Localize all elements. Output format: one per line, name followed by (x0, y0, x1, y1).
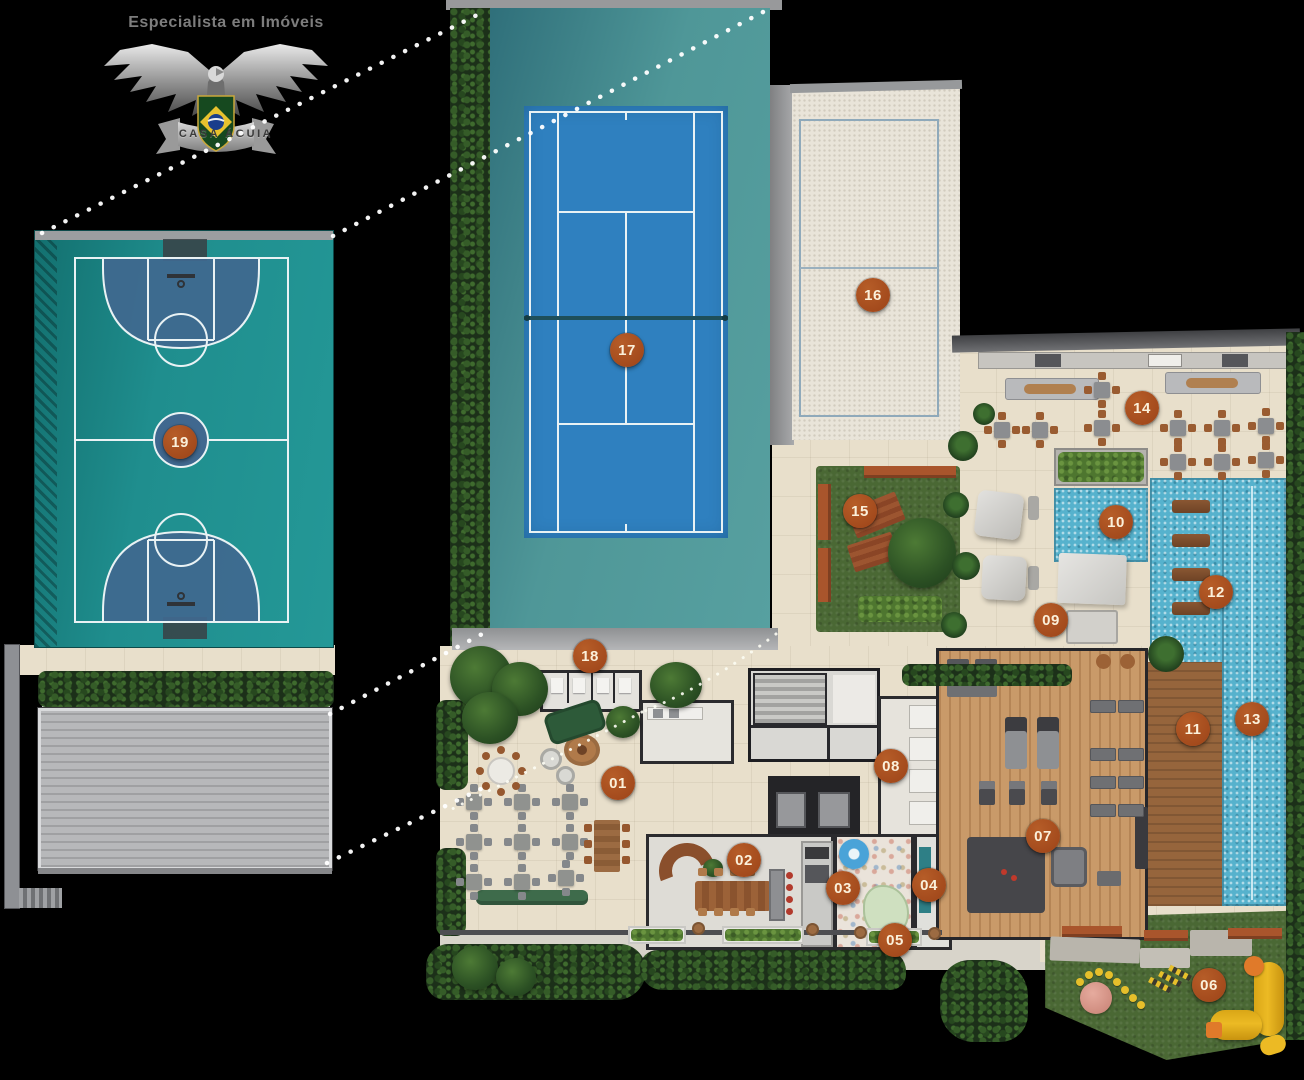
fixture (597, 678, 609, 693)
stepping-dot (1076, 978, 1084, 986)
chair (584, 856, 592, 864)
bottom-hedge (940, 960, 1028, 1042)
dining-table-set (1202, 442, 1242, 482)
gym-storage-box (1118, 700, 1144, 713)
garden-hedge (858, 596, 942, 622)
play-block (1206, 1022, 1222, 1038)
chair (504, 838, 512, 846)
stepping-dot (1121, 986, 1129, 994)
bbq-appliance (1035, 354, 1061, 367)
table (1170, 420, 1186, 436)
logo-banner-text: CASA ÁGUIA (136, 128, 316, 140)
chair (746, 908, 755, 916)
gym-storage-box (1090, 700, 1116, 713)
chair (1218, 410, 1226, 418)
chair (512, 782, 520, 790)
chair (512, 752, 520, 760)
partition (567, 673, 569, 703)
stepping-dot (1113, 978, 1121, 986)
pot-tree (692, 922, 705, 935)
stepping-dot (1137, 1001, 1145, 1009)
walkway-planter (628, 926, 686, 944)
building-left-shade (35, 240, 57, 647)
chair (566, 784, 574, 792)
chair (484, 798, 492, 806)
chair (1218, 472, 1226, 480)
playground-path (1140, 948, 1190, 968)
fixture (551, 678, 563, 693)
wc-stall (909, 737, 939, 761)
table (466, 794, 482, 810)
chair (456, 878, 464, 886)
table (514, 874, 530, 890)
chair (456, 838, 464, 846)
chair (698, 868, 707, 876)
chair (622, 840, 630, 848)
chair (1036, 412, 1044, 420)
stepping-dot (1085, 971, 1093, 979)
buffet-table (1165, 372, 1261, 394)
gym-storage-box (1118, 776, 1144, 789)
chair (562, 860, 570, 868)
chair (470, 892, 478, 900)
chair (566, 812, 574, 820)
chair (482, 752, 490, 760)
room-support-kitchen (640, 700, 734, 764)
resort-site-plan: Especialista em Imóveis (0, 0, 1304, 1080)
tennis-court-lines (524, 106, 728, 538)
treadmill (1037, 717, 1059, 769)
squat-rack (979, 781, 995, 805)
inset-left-wall (5, 645, 19, 908)
gym-bench (1097, 871, 1121, 886)
marker-14[interactable]: 14 (1125, 391, 1159, 425)
bar-stool (786, 872, 793, 879)
pool-lounger (1172, 534, 1210, 547)
chair (1188, 458, 1196, 466)
chair (1160, 458, 1168, 466)
table (562, 834, 578, 850)
dining-table-set (1246, 440, 1286, 480)
chair (698, 908, 707, 916)
patio-long-table (594, 820, 620, 872)
chair (1160, 424, 1168, 432)
wc-stall (909, 801, 939, 825)
dining-table-set (1082, 408, 1122, 448)
stepping-dot (1095, 968, 1103, 976)
patio-round-table (487, 757, 515, 785)
patio-plant (606, 706, 640, 738)
chair (1232, 458, 1240, 466)
marker-18[interactable]: 18 (573, 639, 607, 673)
elevator-car (818, 792, 850, 828)
chair (518, 812, 526, 820)
dining-long-table (695, 881, 771, 911)
garden-bench-top (864, 466, 956, 478)
chair (532, 878, 540, 886)
palm-tree (943, 492, 969, 518)
playground-bench (1062, 926, 1122, 937)
appliance (653, 709, 663, 718)
palm-tree (948, 431, 978, 461)
chair (714, 908, 723, 916)
chair (998, 412, 1006, 420)
chair (1098, 410, 1106, 418)
chair (518, 864, 526, 872)
cabana-furniture (1066, 610, 1118, 644)
gym-storage-box (1090, 748, 1116, 761)
planter-shrubs (1058, 452, 1144, 482)
chair (1262, 408, 1270, 416)
marker-13[interactable]: 13 (1235, 702, 1269, 736)
garden-tree (888, 518, 956, 588)
patio-table-set (551, 783, 589, 821)
tennis-bottom-wall (452, 628, 778, 650)
chair (576, 874, 584, 882)
landing (833, 675, 875, 723)
pot-tree (854, 926, 867, 939)
table (1094, 420, 1110, 436)
elevator-block (768, 776, 860, 836)
chair (580, 798, 588, 806)
chair (1248, 456, 1256, 464)
pool-deck (1148, 662, 1222, 906)
chair (584, 824, 592, 832)
bbq-grill (1148, 354, 1182, 367)
chair (456, 798, 464, 806)
appliance (669, 709, 679, 718)
table (514, 794, 530, 810)
gym-storage-box (1090, 804, 1116, 817)
sun-lounger (1028, 566, 1039, 590)
patio-table-set (503, 863, 541, 901)
chair (518, 852, 526, 860)
umbrella (981, 555, 1027, 601)
chair (998, 440, 1006, 448)
marker-01[interactable]: 01 (601, 766, 635, 800)
squat-rack (1041, 781, 1057, 805)
table (994, 422, 1010, 438)
marker-07[interactable]: 07 (1026, 819, 1060, 853)
gym-storage-box (1118, 748, 1144, 761)
pot-tree (806, 923, 819, 936)
garden-bench-left (818, 548, 831, 602)
chair (622, 824, 630, 832)
chair (484, 838, 492, 846)
stepping-dot (1105, 971, 1113, 979)
dumbbell (1001, 869, 1007, 875)
table (1258, 418, 1274, 434)
bbq-appliance (1222, 354, 1248, 367)
patio-table-set (503, 783, 541, 821)
treadmill (1005, 717, 1027, 769)
planter-shrubs (725, 929, 801, 941)
chair (1098, 400, 1106, 408)
chair (1188, 424, 1196, 432)
marker-04[interactable]: 04 (912, 868, 946, 902)
tennis-court-surface (524, 106, 728, 538)
chair (497, 746, 505, 754)
marker-12[interactable]: 12 (1199, 575, 1233, 609)
tennis-building (446, 0, 794, 650)
deck-pouf (1120, 654, 1135, 669)
table (466, 874, 482, 890)
chair (1276, 456, 1284, 464)
chair (584, 840, 592, 848)
core-wall (751, 725, 879, 728)
chair (532, 798, 540, 806)
chair (518, 824, 526, 832)
dining-table-set (1082, 370, 1122, 410)
playground-path (1050, 936, 1141, 963)
chair (470, 824, 478, 832)
chair (470, 852, 478, 860)
dumbbell (1011, 875, 1017, 881)
marker-02[interactable]: 02 (727, 843, 761, 877)
right-hedge-column (1286, 332, 1304, 1040)
chair (476, 767, 484, 775)
marker-09[interactable]: 09 (1034, 603, 1068, 637)
chair (1084, 386, 1092, 394)
core-wall (827, 725, 830, 759)
table (466, 834, 482, 850)
chair (1022, 426, 1030, 434)
kitchen-appliance (805, 847, 829, 859)
bottom-tree (496, 958, 536, 996)
marker-19[interactable]: 19 (163, 425, 197, 459)
chair (518, 892, 526, 900)
chair (470, 864, 478, 872)
palm-tree (1148, 636, 1184, 672)
fixture (619, 678, 631, 693)
table (558, 870, 574, 886)
chair (1012, 426, 1020, 434)
inset-stairs (19, 888, 62, 908)
chair (470, 812, 478, 820)
bar-stool (786, 908, 793, 915)
table (1170, 454, 1186, 470)
eagle-logo-icon (96, 4, 356, 179)
chair (470, 784, 478, 792)
overhang-tree (650, 662, 702, 708)
brand-logo: Especialista em Imóveis (96, 4, 356, 179)
chair (1112, 386, 1120, 394)
bar-counter (769, 869, 785, 921)
walkway-planter (722, 926, 804, 944)
beach-volleyball-area (792, 88, 960, 440)
marker-06[interactable]: 06 (1192, 968, 1226, 1002)
volleyball-court-lines (792, 88, 960, 440)
patio-tree (462, 692, 518, 744)
table (514, 834, 530, 850)
umbrella (973, 489, 1024, 540)
bar-stool (786, 896, 793, 903)
partition (591, 673, 593, 703)
chair (714, 868, 723, 876)
table (562, 794, 578, 810)
ball-pit-donut (839, 839, 869, 869)
marker-05[interactable]: 05 (878, 923, 912, 957)
pot-tree (928, 927, 941, 940)
palm-tree (952, 552, 980, 580)
planter-shrubs (631, 929, 683, 941)
inset-hedge-row (38, 671, 334, 707)
chair (1262, 442, 1270, 450)
gym-storage-box (1090, 776, 1116, 789)
table (1214, 420, 1230, 436)
chair (1262, 470, 1270, 478)
pool-lounger (1172, 500, 1210, 513)
chair (984, 426, 992, 434)
pergola-cabana (1057, 553, 1127, 605)
chair (1174, 472, 1182, 480)
dining-table-set (1020, 410, 1060, 450)
chair (484, 878, 492, 886)
patio-table-set (547, 859, 585, 897)
table (1094, 382, 1110, 398)
gym-machine (1051, 847, 1087, 887)
chair (532, 838, 540, 846)
kitchen-appliance (805, 865, 829, 883)
chair (562, 888, 570, 896)
chair (1174, 444, 1182, 452)
sun-lounger (1028, 496, 1039, 520)
chair (1050, 426, 1058, 434)
chair (1084, 424, 1092, 432)
elevator-car (776, 792, 806, 828)
lap-lane-line (1251, 486, 1253, 900)
chair (504, 798, 512, 806)
gym-storage-box (1118, 804, 1144, 817)
chair (1174, 410, 1182, 418)
stairs (755, 675, 825, 723)
bar-stool (786, 884, 793, 891)
stepping-dot (1129, 994, 1137, 1002)
chair (1232, 424, 1240, 432)
chair (552, 838, 560, 846)
table (1032, 422, 1048, 438)
bottom-hedge (640, 950, 906, 990)
bottom-tree (452, 946, 498, 990)
marker-15[interactable]: 15 (843, 494, 877, 528)
garage-roof-edge (38, 868, 332, 874)
wc-stall (909, 705, 939, 729)
corridor-hedge (902, 664, 1072, 686)
playground-bench (1228, 928, 1282, 939)
wc-stall (909, 769, 939, 793)
chair (1098, 438, 1106, 446)
play-structure-seat (1244, 956, 1264, 976)
chair (1204, 458, 1212, 466)
chair (1218, 444, 1226, 452)
partition (613, 673, 615, 703)
chair (548, 874, 556, 882)
deck-pouf (1096, 654, 1111, 669)
terrace-planter (1054, 448, 1148, 486)
playground-bench (1144, 930, 1188, 941)
fixture (573, 678, 585, 693)
dining-table-set (1158, 442, 1198, 482)
marker-08[interactable]: 08 (874, 749, 908, 783)
buffet-food (1024, 384, 1076, 394)
marker-11[interactable]: 11 (1176, 712, 1210, 746)
round-daybed (540, 748, 562, 770)
marker-16[interactable]: 16 (856, 278, 890, 312)
chair (518, 767, 526, 775)
chair (1204, 424, 1212, 432)
marker-10[interactable]: 10 (1099, 505, 1133, 539)
patio-table-set (503, 823, 541, 861)
chair (1248, 422, 1256, 430)
patio-table-set (455, 863, 493, 901)
garage-roof (38, 708, 332, 870)
garden-bench-left (818, 484, 831, 540)
chair (566, 824, 574, 832)
chair (552, 798, 560, 806)
patio-table-set (455, 823, 493, 861)
table (1214, 454, 1230, 470)
tennis-right-wall (770, 85, 794, 445)
buffet-food (1186, 378, 1238, 388)
palm-tree (941, 612, 967, 638)
stair-core (748, 668, 880, 762)
chair (1112, 424, 1120, 432)
chair (730, 908, 739, 916)
palm-tree (973, 403, 995, 425)
firepit (577, 745, 587, 755)
chair (504, 878, 512, 886)
splash-circle (1080, 982, 1112, 1014)
chair (622, 856, 630, 864)
marker-03[interactable]: 03 (826, 871, 860, 905)
chair (1036, 440, 1044, 448)
chair (497, 788, 505, 796)
table (1258, 452, 1274, 468)
chair (1098, 372, 1106, 380)
tennis-hedge-strip (450, 8, 490, 646)
gym (936, 648, 1148, 940)
squat-rack (1009, 781, 1025, 805)
marker-17[interactable]: 17 (610, 333, 644, 367)
chair (1276, 422, 1284, 430)
lap-pool (1222, 478, 1286, 906)
chair (482, 782, 490, 790)
